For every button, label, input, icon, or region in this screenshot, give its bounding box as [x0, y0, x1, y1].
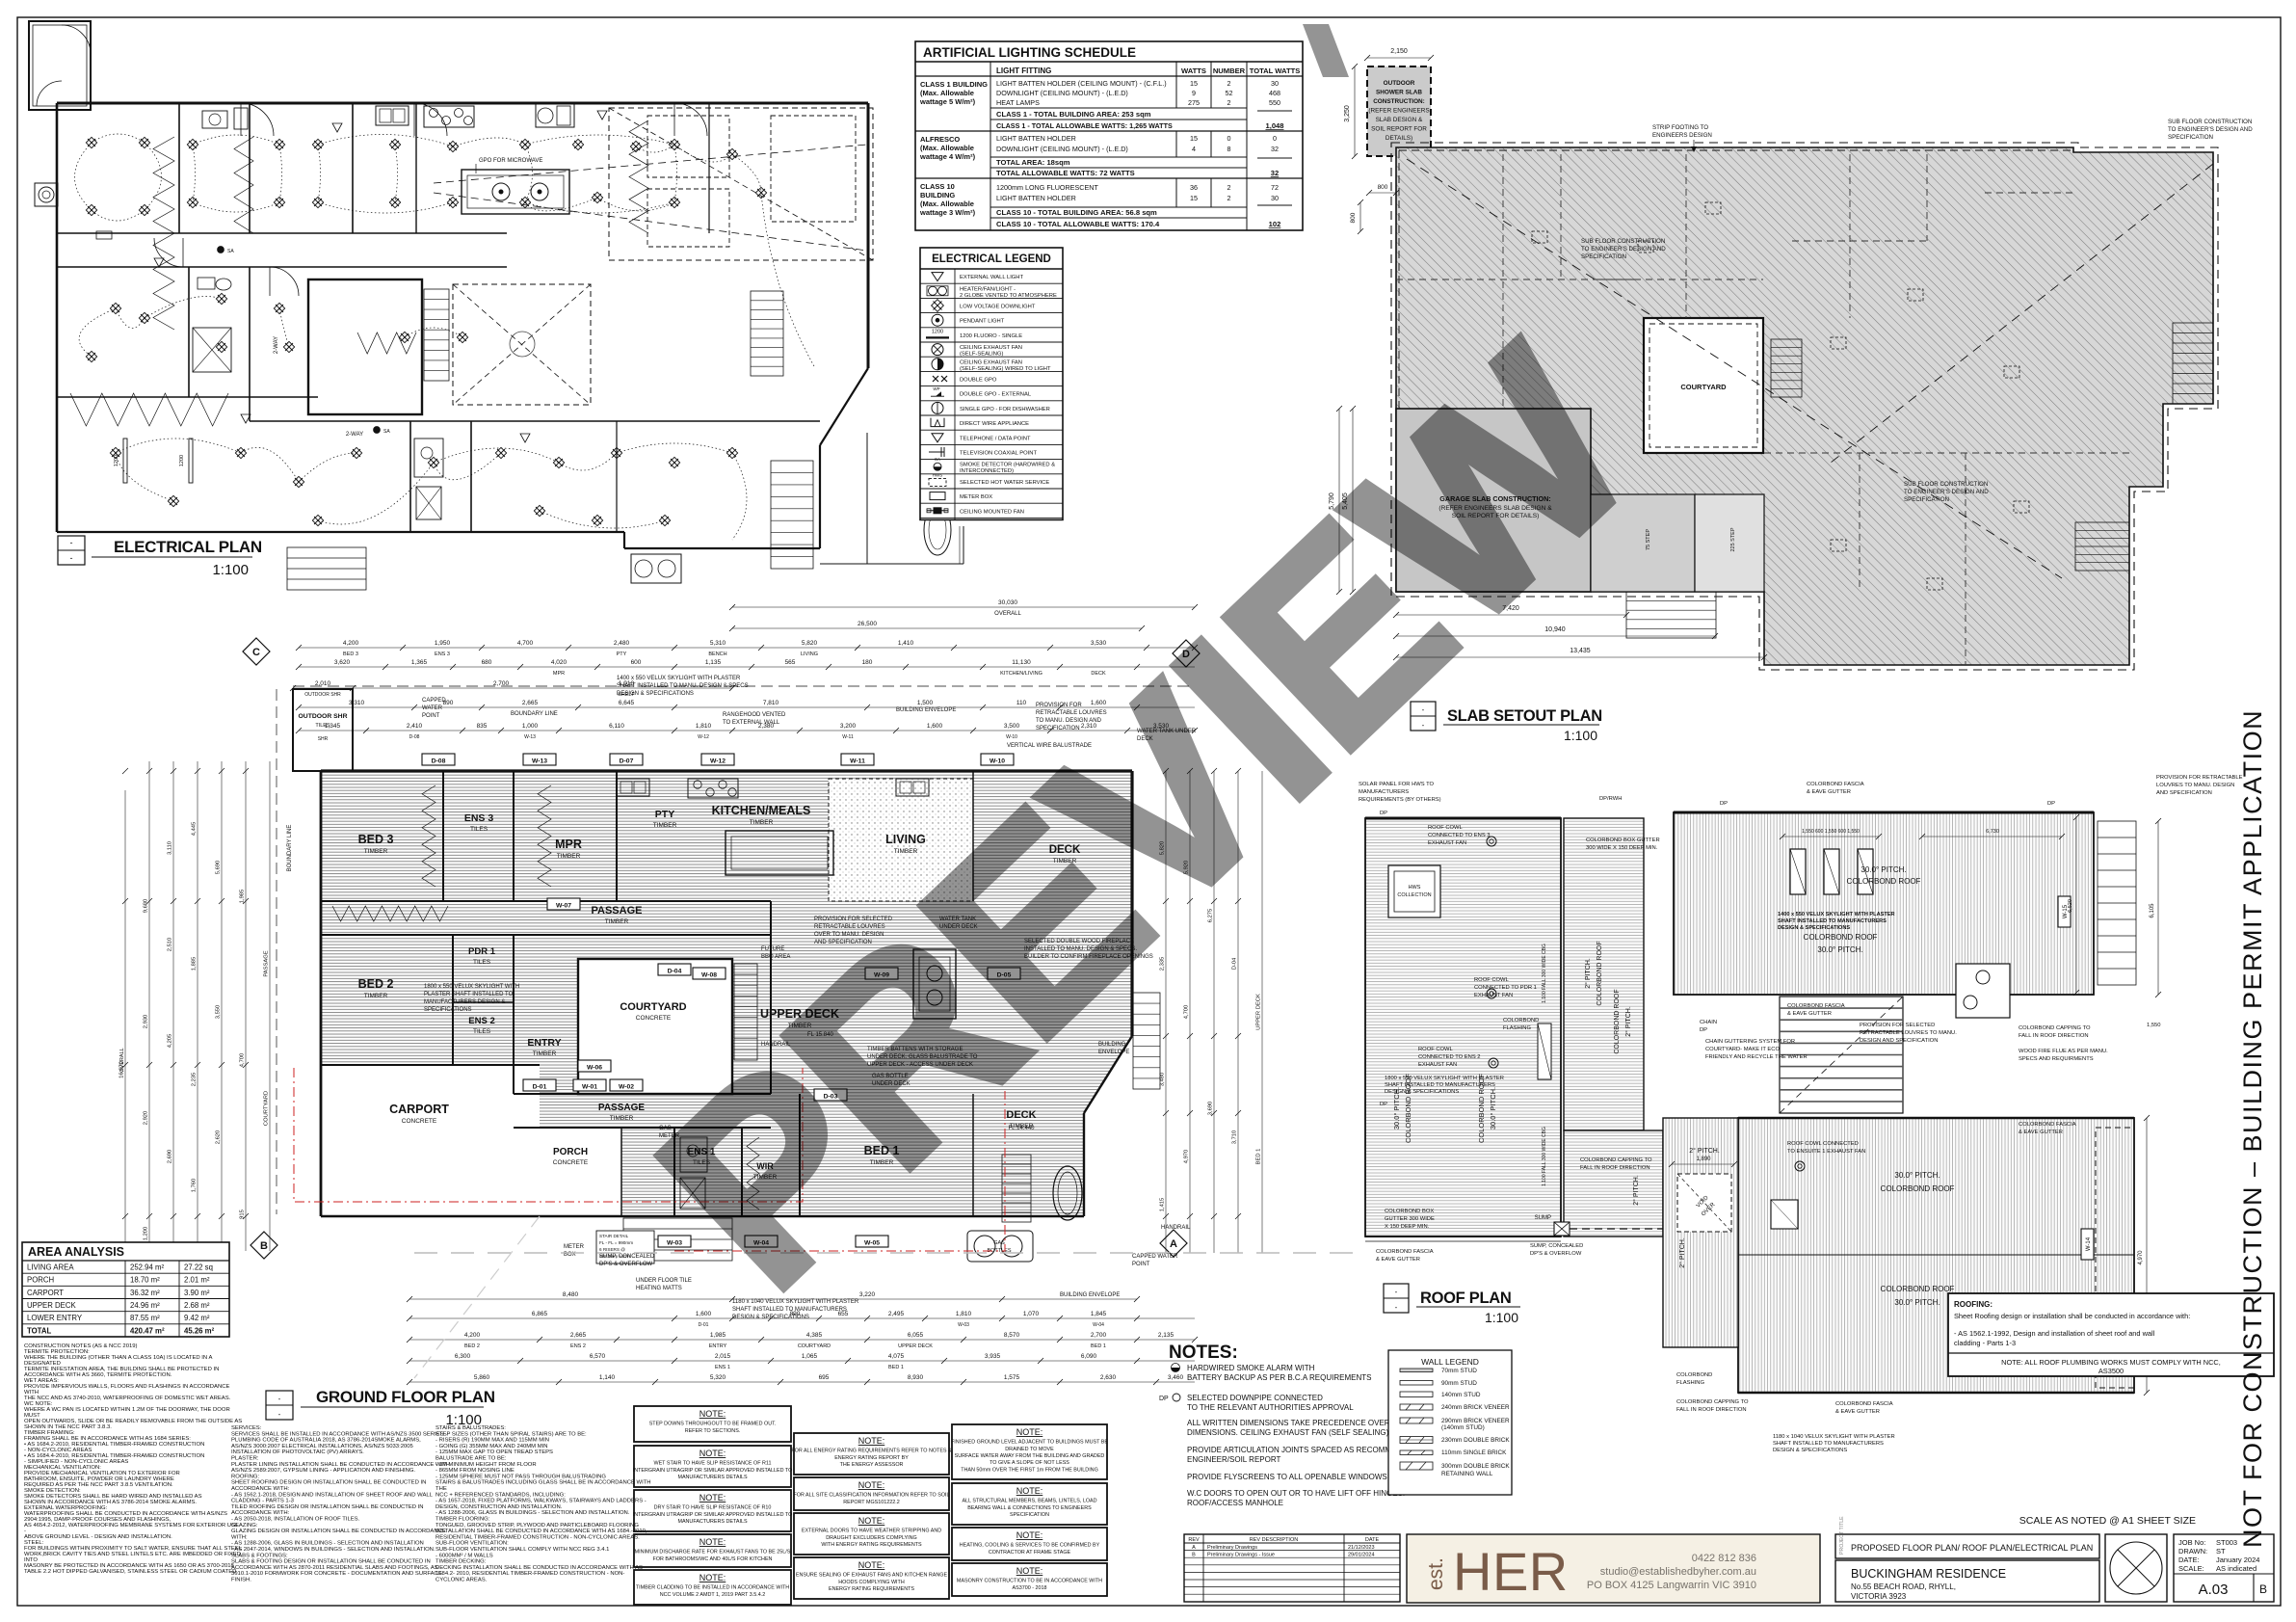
svg-text:FOR ALL ENERGY RATING REQUIREM: FOR ALL ENERGY RATING REQUIREMENTS REFER… — [791, 1449, 952, 1454]
svg-text:NOTE:: NOTE: — [1016, 1427, 1043, 1437]
svg-text:AND SPECIFICATION: AND SPECIFICATION — [2156, 790, 2212, 796]
svg-text:RETRACTABLE LOUVRES TO MANU.: RETRACTABLE LOUVRES TO MANU. — [1860, 1030, 1957, 1036]
svg-text:LIVING: LIVING — [801, 651, 818, 657]
svg-text:COLLECTION: COLLECTION — [1397, 892, 1431, 898]
svg-text:6,110: 6,110 — [609, 723, 624, 730]
svg-text:D-01: D-01 — [699, 1322, 709, 1328]
svg-text:1,950: 1,950 — [435, 640, 451, 647]
svg-text:W.C DOORS TO OPEN OUT OR TO HA: W.C DOORS TO OPEN OUT OR TO HAVE LIFT OF… — [1187, 1489, 1405, 1498]
svg-text:COLORBOND CAPPING TO: COLORBOND CAPPING TO — [2019, 1025, 2091, 1031]
svg-text:DESIGN & SPECIFICATIONS: DESIGN & SPECIFICATIONS — [1385, 1089, 1459, 1095]
svg-text:102: 102 — [1269, 220, 1281, 228]
svg-text:METER BOX: METER BOX — [960, 494, 992, 500]
svg-text:D-08: D-08 — [409, 734, 420, 740]
svg-text:9: 9 — [1192, 89, 1196, 97]
svg-text:BED 2: BED 2 — [358, 977, 394, 991]
svg-text:1,810: 1,810 — [696, 723, 712, 730]
svg-text:DOUBLE GPO - EXTERNAL: DOUBLE GPO - EXTERNAL — [960, 392, 1032, 398]
svg-text:wattage 5 W/m²): wattage 5 W/m²) — [919, 97, 976, 106]
svg-text:TIMBER: TIMBER — [750, 819, 774, 826]
svg-text:THE ENERGY ASSESSOR: THE ENERGY ASSESSOR — [840, 1462, 904, 1468]
svg-text:D-07: D-07 — [620, 758, 634, 765]
svg-text:2-WAY: 2-WAY — [346, 432, 363, 438]
svg-text:DRAINED TO MOVE: DRAINED TO MOVE — [1005, 1447, 1054, 1452]
svg-text:30.0° PITCH.: 30.0° PITCH. — [1489, 1087, 1497, 1130]
svg-text:NOTE:: NOTE: — [1016, 1530, 1043, 1540]
svg-text:1400 x 550 VELUX SKYLIGHT WITH: 1400 x 550 VELUX SKYLIGHT WITH PLASTER — [1778, 912, 1895, 917]
svg-text:9.42 m²: 9.42 m² — [184, 1314, 210, 1322]
svg-text:TIMBER: TIMBER — [364, 993, 388, 999]
svg-text:30.0° PITCH.: 30.0° PITCH. — [1894, 1298, 1940, 1307]
svg-text:1,140: 1,140 — [599, 1374, 616, 1381]
svg-text:1:100: 1:100 — [1564, 728, 1597, 743]
svg-text:ELECTRICAL LEGEND: ELECTRICAL LEGEND — [932, 253, 1051, 265]
svg-text:4,075: 4,075 — [888, 1353, 905, 1360]
svg-text:SPECS AND REQUIRMENTS: SPECS AND REQUIRMENTS — [2019, 1056, 2094, 1062]
svg-text:ROOFING:: ROOFING: — [1954, 1300, 1993, 1309]
svg-text:30: 30 — [1271, 79, 1279, 88]
svg-text:TOTAL WATTS: TOTAL WATTS — [1250, 66, 1301, 75]
svg-text:METER: METER — [564, 1244, 585, 1250]
svg-text:VICTORIA 3923: VICTORIA 3923 — [1851, 1592, 1907, 1601]
svg-text:SLAB DESIGN &: SLAB DESIGN & — [1376, 117, 1423, 123]
svg-text:NOTE:: NOTE: — [699, 1449, 726, 1458]
svg-text:PORCH: PORCH — [553, 1147, 588, 1157]
svg-text:KITCHEN/LIVING: KITCHEN/LIVING — [1000, 671, 1042, 677]
svg-text:275: 275 — [1188, 98, 1200, 107]
svg-text:3,200: 3,200 — [840, 723, 857, 730]
svg-text:5,320: 5,320 — [710, 1374, 726, 1381]
svg-text:LOUVRES TO MANU. DESIGN: LOUVRES TO MANU. DESIGN — [2156, 783, 2234, 788]
svg-text:COLORBOND BOX GUTTER: COLORBOND BOX GUTTER — [1586, 838, 1660, 843]
svg-text:SOIL REPORT FOR: SOIL REPORT FOR — [1371, 126, 1427, 133]
svg-text:NOTE:: NOTE: — [858, 1516, 885, 1526]
svg-text:- AS 1288-2006, GLASS IN BUILD: - AS 1288-2006, GLASS IN BUILDINGS - SEL… — [435, 1510, 630, 1516]
svg-text:2° PITCH.: 2° PITCH. — [1584, 958, 1592, 989]
svg-text:24.96 m²: 24.96 m² — [130, 1301, 160, 1310]
svg-text:(Max. Allowable: (Max. Allowable — [920, 144, 974, 152]
svg-text:(Max. Allowable: (Max. Allowable — [920, 89, 974, 97]
svg-text:-: - — [70, 538, 73, 547]
svg-text:PASSAGE: PASSAGE — [592, 905, 643, 917]
svg-text:ARTIFICIAL LIGHTING SCHEDULE: ARTIFICIAL LIGHTING SCHEDULE — [923, 45, 1136, 60]
svg-text:NCC + REFERENCED STANDARDS, IN: NCC + REFERENCED STANDARDS, INCLUDING: — [435, 1492, 566, 1498]
svg-text:1,365: 1,365 — [411, 659, 428, 666]
svg-text:EXTERNAL DOORS TO HAVE WEATHER: EXTERNAL DOORS TO HAVE WEATHER STRIPPING… — [802, 1529, 941, 1534]
svg-text:CONNECTED TO ENS 2: CONNECTED TO ENS 2 — [1418, 1054, 1481, 1060]
svg-text:FLASHING: FLASHING — [1676, 1380, 1704, 1386]
svg-text:180: 180 — [862, 659, 873, 666]
svg-text:PLUMBING CODE OF AUSTRALIA 201: PLUMBING CODE OF AUSTRALIA 2018, AS 3786… — [231, 1438, 421, 1444]
svg-text:2.01 m²: 2.01 m² — [184, 1276, 210, 1285]
svg-text:680: 680 — [482, 659, 492, 666]
svg-text:- AS 1288-2006, GLASS IN BUILD: - AS 1288-2006, GLASS IN BUILDINGS - SEL… — [231, 1541, 424, 1547]
svg-text:ROOF/ACCESS MANHOLE: ROOF/ACCESS MANHOLE — [1187, 1499, 1283, 1507]
svg-text:5,690: 5,690 — [216, 861, 222, 875]
svg-text:WHERE A WC PAN IS LOCATED WITH: WHERE A WC PAN IS LOCATED WITHIN 1.2M OF… — [24, 1407, 230, 1413]
svg-text:DOWNLIGHT (CEILING MOUNT) - (L: DOWNLIGHT (CEILING MOUNT) - (L.E.D) — [996, 145, 1128, 153]
svg-text:0: 0 — [1273, 134, 1277, 143]
svg-text:1.100 FALL 300 WIDE CBG: 1.100 FALL 300 WIDE CBG — [1542, 1127, 1547, 1186]
svg-text:CARPORT: CARPORT — [27, 1289, 64, 1297]
svg-text:DOUBLE GPO: DOUBLE GPO — [960, 378, 997, 384]
svg-text:NUMBER: NUMBER — [1213, 66, 1246, 75]
svg-text:GLAZING:: GLAZING: — [231, 1523, 258, 1529]
svg-text:TIMBER: TIMBER — [557, 853, 581, 860]
svg-text:DP: DP — [2047, 801, 2055, 807]
svg-text:2,690: 2,690 — [168, 1150, 173, 1164]
svg-text:GAS: GAS — [993, 1240, 1005, 1246]
svg-text:230mm DOUBLE BRICK: 230mm DOUBLE BRICK — [1441, 1437, 1510, 1444]
svg-text:SPECIFICATION: SPECIFICATION — [1904, 496, 1949, 503]
svg-text:1:100: 1:100 — [212, 562, 249, 578]
svg-text:SLABS & FOOTINGS:: SLABS & FOOTINGS: — [231, 1553, 288, 1558]
svg-text:4,205: 4,205 — [168, 1034, 173, 1049]
svg-text:240mm BRICK VENEER: 240mm BRICK VENEER — [1441, 1404, 1510, 1411]
svg-text:DP: DP — [1720, 801, 1728, 807]
svg-text:ABOVE GROUND LEVEL - DESIGN AN: ABOVE GROUND LEVEL - DESIGN AND INSTALLA… — [24, 1534, 172, 1540]
svg-text:PLASTER SHAFT INSTALLED TO: PLASTER SHAFT INSTALLED TO — [424, 992, 514, 997]
svg-text:DESIGN & SPECIFICATIONS: DESIGN & SPECIFICATIONS — [1773, 1448, 1847, 1453]
svg-text:DP/RWH: DP/RWH — [1599, 796, 1622, 802]
svg-text:BUILDING: BUILDING — [920, 191, 955, 199]
svg-text:COLORBOND FASCIA: COLORBOND FASCIA — [1376, 1249, 1434, 1255]
svg-text:565: 565 — [785, 659, 796, 666]
svg-text:GPO FOR MICROWAVE: GPO FOR MICROWAVE — [479, 158, 542, 164]
svg-text:6,730: 6,730 — [1986, 829, 1999, 835]
svg-text:HWS: HWS — [933, 472, 943, 477]
svg-text:COURTYARD: COURTYARD — [798, 1343, 831, 1349]
svg-text:6,300: 6,300 — [455, 1353, 471, 1360]
svg-text:LIGHT FITTING: LIGHT FITTING — [996, 66, 1051, 75]
svg-text:FL - FL = 990mm: FL - FL = 990mm — [599, 1240, 633, 1245]
svg-text:1,065: 1,065 — [802, 1353, 818, 1360]
svg-text:2,930: 2,930 — [144, 1015, 149, 1029]
svg-text:36: 36 — [1190, 183, 1198, 192]
svg-text:800: 800 — [1378, 184, 1388, 191]
svg-text:1:100: 1:100 — [1485, 1310, 1518, 1325]
svg-text:INTERGRAIN UTRAGRIP OR SIMILAR: INTERGRAIN UTRAGRIP OR SIMILAR APPROVED … — [633, 1512, 793, 1518]
svg-text:BENCH: BENCH — [708, 651, 726, 657]
svg-text:LIGHT BATTEN HOLDER: LIGHT BATTEN HOLDER — [996, 194, 1076, 202]
svg-text:SPECIFICATIONS: SPECIFICATIONS — [424, 1007, 472, 1013]
svg-text:FOR ALL SITE CLASSIFICATION IN: FOR ALL SITE CLASSIFICATION INFORMATION … — [793, 1493, 949, 1499]
svg-text:CEILING MOUNTED FAN: CEILING MOUNTED FAN — [960, 509, 1024, 515]
svg-text:W-01: W-01 — [582, 1084, 597, 1091]
svg-text:1,410: 1,410 — [898, 640, 914, 647]
svg-text:1200: 1200 — [179, 455, 185, 466]
svg-text:NCC VOLUME 2 AMDT 1, 2019 PART: NCC VOLUME 2 AMDT 1, 2019 PART 3.5.4.2 — [660, 1592, 766, 1598]
svg-text:32: 32 — [1271, 169, 1279, 177]
svg-text:BATTERY BACKUP AS PER B.C.A RE: BATTERY BACKUP AS PER B.C.A REQUIREMENTS — [1187, 1373, 1371, 1382]
svg-text:TILES: TILES — [473, 959, 491, 966]
svg-text:1,000: 1,000 — [522, 723, 539, 730]
svg-text:4,445: 4,445 — [192, 822, 198, 837]
svg-text:CONSTRUCTION:: CONSTRUCTION: — [1373, 98, 1425, 105]
svg-text:B: B — [260, 1240, 268, 1252]
svg-text:3.90 m²: 3.90 m² — [184, 1289, 210, 1297]
svg-text:NOTE:: NOTE: — [699, 1537, 726, 1547]
svg-text:BUCKINGHAM RESIDENCE: BUCKINGHAM RESIDENCE — [1851, 1567, 2006, 1581]
svg-text:SMOKE DETECTOR (HARDWIRED &: SMOKE DETECTOR (HARDWIRED & — [960, 463, 1055, 468]
svg-text:CONNECTED TO PDR 1: CONNECTED TO PDR 1 — [1474, 985, 1537, 991]
svg-text:COLORBOND FASCIA: COLORBOND FASCIA — [1787, 1003, 1845, 1009]
svg-text:W-11: W-11 — [850, 758, 865, 765]
svg-text:30.0° PITCH.: 30.0° PITCH. — [1861, 865, 1906, 874]
svg-text:1,885: 1,885 — [192, 957, 198, 971]
svg-text:3610.1-2010 FORMWORK FOR CONCR: 3610.1-2010 FORMWORK FOR CONCRETE - DOCU… — [231, 1571, 442, 1577]
svg-text:-: - — [70, 553, 73, 563]
svg-text:1800 x 550 VELUX SKYLIGHT WITH: 1800 x 550 VELUX SKYLIGHT WITH — [424, 984, 519, 990]
svg-text:EXHAUST FAN: EXHAUST FAN — [1418, 1062, 1457, 1068]
svg-text:2,665: 2,665 — [570, 1332, 587, 1339]
svg-text:3,550: 3,550 — [216, 1005, 222, 1020]
svg-text:X 150 DEEP MIN.: X 150 DEEP MIN. — [1385, 1224, 1430, 1230]
svg-text:MANUFACTURERS DETAILS: MANUFACTURERS DETAILS — [677, 1475, 747, 1480]
svg-text:AS/NZS 2589:2007, GYPSUM LININ: AS/NZS 2589:2007, GYPSUM LINING - APPLIC… — [231, 1468, 415, 1474]
svg-text:TO THE RELEVANT AUTHORITIES AP: TO THE RELEVANT AUTHORITIES APPROVAL — [1187, 1403, 1354, 1412]
svg-text:CYCLONIC AREAS.: CYCLONIC AREAS. — [435, 1578, 488, 1583]
svg-text:ALL WRITTEN DIMENSIONS TAKE PR: ALL WRITTEN DIMENSIONS TAKE PRECEDENCE O… — [1187, 1419, 1423, 1427]
svg-text:TO ENGINEER'S DESIGN AND: TO ENGINEER'S DESIGN AND — [2168, 126, 2253, 133]
svg-text:420.47 m²: 420.47 m² — [130, 1326, 165, 1335]
svg-text:225 STEP: 225 STEP — [1730, 527, 1736, 551]
svg-text:BALUSTRADE ARE TO BE:: BALUSTRADE ARE TO BE: — [435, 1456, 507, 1462]
svg-text:A.03: A.03 — [2199, 1582, 2229, 1598]
svg-text:2: 2 — [1227, 79, 1231, 88]
svg-text:3,530: 3,530 — [1091, 640, 1107, 647]
svg-text:PROVISION FOR SELECTED: PROVISION FOR SELECTED — [1860, 1023, 1935, 1028]
svg-text:1,985: 1,985 — [240, 890, 246, 904]
svg-text:TO ENSUITE 1 EXHAUST FAN: TO ENSUITE 1 EXHAUST FAN — [1787, 1149, 1865, 1155]
svg-text:SUMP: SUMP — [1535, 1215, 1551, 1221]
svg-text:2 GLOBE VENTED TO ATMOSPHERE: 2 GLOBE VENTED TO ATMOSPHERE — [960, 293, 1057, 299]
svg-text:(Max. Allowable: (Max. Allowable — [920, 199, 974, 208]
svg-text:TO ENGINEER'S DESIGN AND: TO ENGINEER'S DESIGN AND — [1581, 246, 1666, 253]
svg-text:COLORBOND FASCIA: COLORBOND FASCIA — [1807, 782, 1864, 787]
svg-text:TO GIVE A SLOPE OF NOT LESS: TO GIVE A SLOPE OF NOT LESS — [990, 1460, 1069, 1466]
svg-text:DIRECT WIRE APPLIANCE: DIRECT WIRE APPLIANCE — [960, 421, 1029, 427]
svg-text:2,620: 2,620 — [216, 1130, 222, 1145]
svg-text:- 865MM FROM NOSING LINE: - 865MM FROM NOSING LINE — [435, 1468, 515, 1474]
svg-text:MANUFACTURERS DESIGN &: MANUFACTURERS DESIGN & — [424, 999, 505, 1005]
svg-text:4,970: 4,970 — [1184, 1150, 1190, 1164]
svg-text:WET STAIR TO HAVE SLIP RESISTA: WET STAIR TO HAVE SLIP RESISTANCE OF R11 — [653, 1461, 771, 1467]
svg-text:Sheet Roofing design or instal: Sheet Roofing design or installation sha… — [1954, 1312, 2190, 1320]
svg-text:TIMBER CLADDING TO BE INSTALLE: TIMBER CLADDING TO BE INSTALLED IN ACCOR… — [636, 1585, 789, 1591]
svg-text:CONCRETE: CONCRETE — [402, 1118, 437, 1125]
svg-text:1,550 600 1,550 600 1,550: 1,550 600 1,550 600 1,550 — [1802, 829, 1860, 835]
svg-text:January 2024: January 2024 — [2216, 1556, 2259, 1564]
svg-text:COURTYARD- MAKE IT ECO: COURTYARD- MAKE IT ECO — [1705, 1047, 1780, 1052]
svg-text:- 1M MINIMUM HEIGHT FROM FLOOR: - 1M MINIMUM HEIGHT FROM FLOOR — [435, 1462, 537, 1468]
svg-text:2° PITCH.: 2° PITCH. — [1632, 1175, 1640, 1206]
svg-text:6,105: 6,105 — [2150, 903, 2155, 918]
svg-text:7,810: 7,810 — [763, 700, 779, 706]
svg-text:1,048: 1,048 — [1265, 121, 1283, 130]
svg-text:1684.2- 2010, RESIDENTIAL TIMB: 1684.2- 2010, RESIDENTIAL TIMBER-FRAMED … — [435, 1571, 624, 1577]
svg-text:- RISERS (R) 190MM MAX AND 115: - RISERS (R) 190MM MAX AND 115MM MIN — [435, 1438, 549, 1444]
svg-text:DP'S & OVERFLOW: DP'S & OVERFLOW — [599, 1262, 652, 1267]
svg-text:1800 x 550 VELUX SKYLIGHT WITH: 1800 x 550 VELUX SKYLIGHT WITH PLASTER — [1385, 1076, 1504, 1081]
svg-text:1,600: 1,600 — [696, 1311, 712, 1317]
svg-text:NOTE: ALL ROOF PLUMBING WORKS: NOTE: ALL ROOF PLUMBING WORKS MUST COMPL… — [2001, 1358, 2221, 1367]
svg-text:1200: 1200 — [932, 329, 943, 334]
svg-text:TO ENGINEER'S DESIGN AND: TO ENGINEER'S DESIGN AND — [1904, 489, 1989, 495]
svg-text:UPPER DECK: UPPER DECK — [1256, 994, 1262, 1030]
svg-text:TELEPHONE / DATA POINT: TELEPHONE / DATA POINT — [960, 436, 1031, 441]
svg-text:2,920: 2,920 — [144, 1111, 149, 1126]
svg-text:DRAWN:: DRAWN: — [2178, 1547, 2207, 1556]
svg-text:1,890: 1,890 — [1696, 1157, 1711, 1162]
svg-text:3,935: 3,935 — [985, 1353, 1001, 1360]
svg-text:6,645: 6,645 — [619, 700, 635, 706]
svg-text:CEILING EXHAUST FAN: CEILING EXHAUST FAN — [960, 359, 1022, 365]
svg-text:0: 0 — [1227, 134, 1231, 143]
svg-text:PROPOSED FLOOR PLAN/ ROOF PLAN: PROPOSED FLOOR PLAN/ ROOF PLAN/ELECTRICA… — [1851, 1543, 2093, 1553]
svg-text:4,020: 4,020 — [551, 659, 567, 666]
svg-text:TIMBER DECKING:: TIMBER DECKING: — [435, 1559, 487, 1565]
svg-text:15: 15 — [1190, 79, 1198, 88]
svg-text:8,930: 8,930 — [908, 1374, 924, 1381]
svg-text:ROOFING:: ROOFING: — [231, 1474, 259, 1479]
svg-text:1,550: 1,550 — [2147, 1023, 2161, 1028]
svg-text:ENGINEERS DESIGN: ENGINEERS DESIGN — [1652, 132, 1712, 139]
svg-text:POINT: POINT — [1132, 1262, 1150, 1267]
svg-text:ENTRY: ENTRY — [527, 1037, 561, 1049]
svg-text:FALL IN ROOF DIRECTION: FALL IN ROOF DIRECTION — [1676, 1407, 1747, 1413]
svg-text:CEILING EXHAUST FAN: CEILING EXHAUST FAN — [960, 345, 1022, 351]
svg-text:27.22 sq: 27.22 sq — [184, 1263, 213, 1272]
svg-text:1400 x 550 VELUX SKYLIGHT WITH: 1400 x 550 VELUX SKYLIGHT WITH PLASTER — [617, 676, 741, 681]
svg-text:6,570: 6,570 — [590, 1353, 606, 1360]
svg-text:CARPORT: CARPORT — [389, 1103, 449, 1116]
svg-text:FINISHED GROUND LEVEL ADJACENT: FINISHED GROUND LEVEL ADJACENT TO BUILDI… — [951, 1440, 1108, 1446]
svg-text:WITH:: WITH: — [231, 1534, 248, 1540]
svg-text:CONCRETE: CONCRETE — [553, 1159, 589, 1166]
svg-text:4: 4 — [1192, 145, 1196, 153]
svg-text:6 RISERS @: 6 RISERS @ — [599, 1247, 625, 1252]
svg-text:6,520: 6,520 — [2068, 899, 2073, 913]
svg-text:CLASS 10 - TOTAL BUILDING AREA: CLASS 10 - TOTAL BUILDING AREA: 56.8 sqm — [996, 208, 1157, 217]
svg-text:COLORBOND: COLORBOND — [1503, 1018, 1539, 1024]
svg-text:SUB-FLOOR VENTILATION:: SUB-FLOOR VENTILATION: — [435, 1541, 509, 1547]
svg-text:90mm STUD: 90mm STUD — [1441, 1380, 1477, 1387]
svg-text:ROOF PLAN: ROOF PLAN — [1420, 1290, 1511, 1307]
svg-text:& EAVE GUTTER: & EAVE GUTTER — [1787, 1011, 1832, 1017]
svg-text:9,680: 9,680 — [144, 899, 149, 914]
svg-text:PTY: PTY — [655, 809, 674, 820]
svg-text:DATE:: DATE: — [2178, 1556, 2200, 1564]
svg-text:CONNECTED TO ENS 3: CONNECTED TO ENS 3 — [1428, 833, 1491, 838]
svg-text:- GOING (G) 355MM MAX AND 240M: - GOING (G) 355MM MAX AND 240MM MIN — [435, 1444, 548, 1449]
svg-text:SERVICES SHALL BE INSTALLED IN: SERVICES SHALL BE INSTALLED IN ACCORDANC… — [231, 1431, 447, 1437]
svg-text:- 125MM SPHERE MUST NOT PASS T: - 125MM SPHERE MUST NOT PASS THROUGH BAL… — [435, 1474, 606, 1479]
svg-text:PLASTER:: PLASTER: — [231, 1456, 259, 1462]
svg-text:W-04: W-04 — [1093, 1322, 1104, 1328]
svg-text:PLASTER LINING INSTALLATION SH: PLASTER LINING INSTALLATION SHALL BE CON… — [231, 1462, 450, 1468]
svg-text:OUTDOOR SHR: OUTDOOR SHR — [304, 692, 341, 698]
svg-text:1,985: 1,985 — [710, 1332, 726, 1339]
svg-text:LOW VOLTAGE DOWNLIGHT: LOW VOLTAGE DOWNLIGHT — [960, 305, 1036, 310]
svg-text:ENS 2: ENS 2 — [468, 1016, 494, 1026]
svg-text:HANDRAIL: HANDRAIL — [1161, 1225, 1191, 1231]
svg-text:(SELF-SEALING): (SELF-SEALING) — [960, 352, 1003, 358]
svg-text:2,665: 2,665 — [522, 700, 539, 706]
svg-text:NOTE:: NOTE: — [699, 1493, 726, 1502]
svg-text:2,700: 2,700 — [493, 680, 510, 687]
svg-text:4,970: 4,970 — [2138, 1250, 2144, 1265]
svg-text:EXHAUST FAN: EXHAUST FAN — [1428, 840, 1466, 846]
svg-text:695: 695 — [819, 1374, 830, 1381]
svg-text:DESIGN & SPECIFICATIONS: DESIGN & SPECIFICATIONS — [1778, 925, 1850, 931]
svg-text:FUTURE: FUTURE — [761, 946, 784, 952]
svg-text:W-14: W-14 — [2086, 1236, 2092, 1251]
svg-text:CHAIN GUTTERING SYSTEM FOR: CHAIN GUTTERING SYSTEM FOR — [1705, 1039, 1795, 1045]
svg-text:COLORBOND ROOF: COLORBOND ROOF — [1881, 1285, 1955, 1293]
svg-text:300 WIDE X 150 DEEP MIN.: 300 WIDE X 150 DEEP MIN. — [1586, 845, 1658, 851]
svg-text:SHAFT INSTALLED TO MANUFACTURE: SHAFT INSTALLED TO MANUFACTURERS — [1773, 1441, 1884, 1447]
svg-text:30,030: 30,030 — [998, 599, 1017, 606]
svg-text:AS indicated: AS indicated — [2216, 1564, 2256, 1573]
svg-text:CONCRETE: CONCRETE — [636, 1015, 672, 1022]
svg-text:SERVICES:: SERVICES: — [231, 1425, 262, 1431]
svg-text:LIGHT BATTEN HOLDER (CEILING M: LIGHT BATTEN HOLDER (CEILING MOUNT) - (C… — [996, 79, 1167, 88]
svg-text:1,600: 1,600 — [927, 723, 943, 730]
svg-text:INTERCONNECTED): INTERCONNECTED) — [960, 468, 1014, 474]
svg-text:-: - — [1395, 1303, 1398, 1312]
svg-text:COLORBOND BOX: COLORBOND BOX — [1385, 1209, 1434, 1214]
svg-text:NOTE:: NOTE: — [1016, 1566, 1043, 1576]
svg-text:& EAVE GUTTER: & EAVE GUTTER — [1376, 1257, 1420, 1263]
svg-text:TELEVISION COAXIAL POINT: TELEVISION COAXIAL POINT — [960, 451, 1037, 457]
svg-text:HWS: HWS — [1409, 885, 1421, 891]
svg-text:GLAZING DESIGN OR INSTALLATION: GLAZING DESIGN OR INSTALLATION SHALL BE … — [231, 1529, 446, 1534]
svg-text:JOB No:: JOB No: — [2178, 1538, 2205, 1547]
svg-text:2° PITCH.: 2° PITCH. — [1678, 1237, 1686, 1268]
svg-text:FLASHING: FLASHING — [1503, 1025, 1531, 1031]
svg-text:2,010: 2,010 — [315, 680, 331, 687]
svg-text:BOUNDARY LINE: BOUNDARY LINE — [287, 825, 293, 872]
svg-text:COLORBOND ROOF: COLORBOND ROOF — [1804, 933, 1878, 942]
svg-text:6,090: 6,090 — [1081, 1353, 1097, 1360]
svg-text:DOWNLIGHT (CEILING MOUNT) - (L: DOWNLIGHT (CEILING MOUNT) - (L.E.D) — [996, 89, 1128, 97]
svg-text:SINGLE GPO - FOR DISHWASHER: SINGLE GPO - FOR DISHWASHER — [960, 407, 1050, 412]
svg-text:2: 2 — [1227, 183, 1231, 192]
svg-text:LOWER ENTRY: LOWER ENTRY — [27, 1314, 83, 1322]
svg-text:FALL IN ROOF DIRECTION: FALL IN ROOF DIRECTION — [1580, 1165, 1650, 1171]
svg-text:4,700: 4,700 — [1184, 1005, 1190, 1020]
svg-text:THE: THE — [435, 1486, 447, 1492]
svg-text:PROVIDE IMPERVIOUS WALLS, FLOO: PROVIDE IMPERVIOUS WALLS, FLOORS AND FLA… — [24, 1384, 229, 1390]
svg-text:SPECIFICATION: SPECIFICATION — [2168, 134, 2213, 141]
svg-text:TOTAL AREA: 18sqm: TOTAL AREA: 18sqm — [996, 158, 1070, 167]
svg-text:HEATING MATTS: HEATING MATTS — [636, 1286, 682, 1291]
svg-text:52: 52 — [1226, 89, 1233, 97]
svg-text:ROOF COWL: ROOF COWL — [1474, 977, 1510, 983]
svg-text:ENS 2: ENS 2 — [570, 1343, 586, 1349]
svg-text:ENS 3: ENS 3 — [464, 812, 494, 824]
svg-text:ELECTRICAL PLAN: ELECTRICAL PLAN — [114, 538, 262, 556]
svg-text:- AS 1657-2018, FIXED PLATFORM: - AS 1657-2018, FIXED PLATFORMS, WALKWAY… — [435, 1499, 647, 1504]
svg-text:PASSAGE: PASSAGE — [264, 950, 270, 976]
svg-text:A: A — [1170, 1238, 1177, 1250]
svg-text:FOR BATHROOMS/WC AND 40L/S FOR: FOR BATHROOMS/WC AND 40L/S FOR KITCHEN — [653, 1556, 773, 1562]
svg-text:30.0° PITCH.: 30.0° PITCH. — [1817, 945, 1862, 954]
svg-text:BOUNDARY LINE: BOUNDARY LINE — [511, 711, 558, 717]
svg-text:DRY STAIR TO HAVE SLIP RESISTA: DRY STAIR TO HAVE SLIP RESISTANCE OF R10 — [654, 1505, 772, 1511]
svg-text:RESIDENTIAL TIMBER-FRAMED CONS: RESIDENTIAL TIMBER-FRAMED CONSTRUCTION -… — [435, 1534, 640, 1540]
